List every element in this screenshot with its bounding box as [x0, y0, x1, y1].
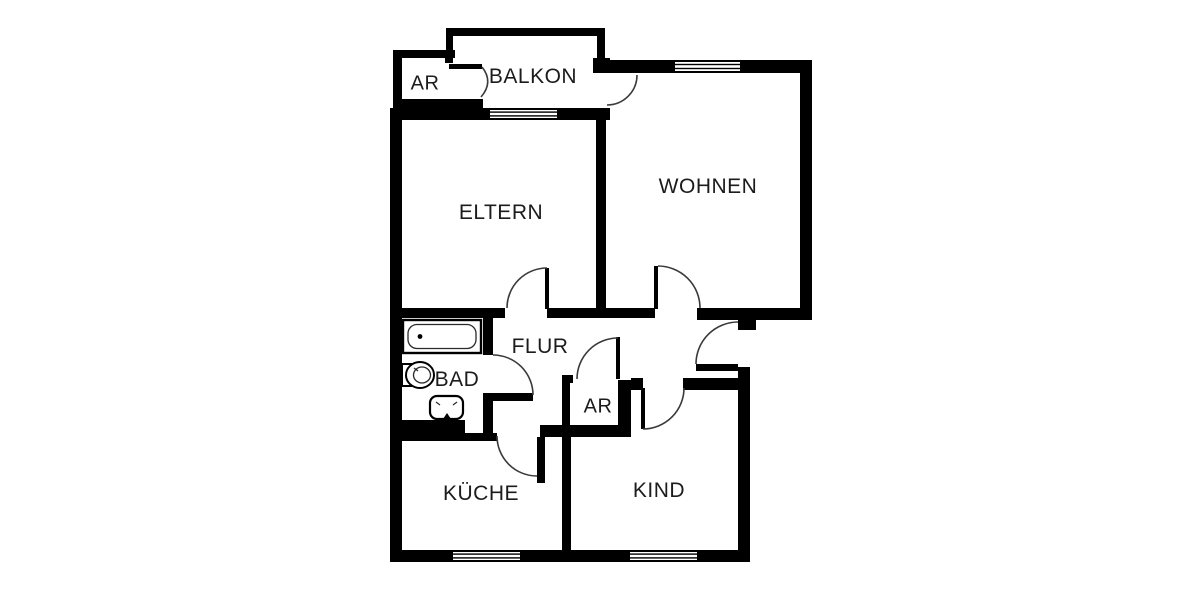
door-leaf-ar-bottom	[616, 337, 620, 379]
door-arc-balkon	[607, 75, 637, 105]
door-arc-entry	[696, 322, 738, 364]
door-arc-bad	[493, 355, 533, 395]
wall-balcony-top	[448, 28, 605, 36]
label-wohnen: WOHNEN	[659, 175, 758, 199]
wall-balcony-right	[597, 28, 605, 62]
bathtub-icon	[403, 320, 481, 353]
door-leaf-wohnen	[654, 266, 658, 309]
wall-bottom-left	[390, 550, 453, 562]
label-kind: KIND	[633, 479, 685, 503]
wall-balcony-left	[446, 28, 453, 53]
wall-divider-eltern-wohnen	[596, 120, 606, 318]
door-leaf-kind	[641, 388, 645, 429]
wall-bad-right-upper	[483, 318, 493, 355]
sink-icon	[430, 396, 463, 419]
wall-divider-kueche-kind	[562, 437, 571, 550]
label-kueche: KÜCHE	[443, 482, 519, 506]
wall-bottom-right	[697, 550, 748, 562]
window-kind	[630, 550, 697, 562]
wall-bottom-mid	[520, 550, 630, 562]
wall-wohnen-right	[800, 60, 812, 320]
floor-plan-page: AR BALKON ELTERN WOHNEN FLUR BAD AR KÜCH…	[0, 0, 1200, 600]
wall-eltern-top-left	[390, 108, 490, 120]
wall-kueche-top	[402, 433, 497, 441]
door-leaf-entry	[696, 364, 738, 371]
door-arc-ar-bottom	[577, 338, 618, 379]
window-wohnen	[675, 60, 740, 73]
label-flur: FLUR	[512, 335, 569, 359]
door-arc-eltern	[507, 268, 547, 308]
wall-ar2-bottom	[540, 425, 631, 437]
wall-bad-south-horiz	[483, 393, 533, 401]
wall-ar-top-bottom	[393, 99, 483, 108]
door-arc-ar-top	[481, 67, 488, 97]
door-arc-kueche	[497, 436, 537, 476]
toilet-icon	[402, 362, 434, 388]
wall-entry-stub	[738, 308, 756, 330]
wall-left-exterior	[390, 108, 402, 562]
wall-eltern-top-right	[557, 108, 610, 120]
door-leaf-ar-top	[449, 64, 482, 69]
window-kueche	[453, 550, 520, 562]
label-eltern: ELTERN	[459, 201, 543, 225]
wall-bad-bottom	[390, 420, 465, 433]
wall-flur-top-mid	[547, 308, 655, 318]
wall-wohnen-top-left	[593, 60, 675, 73]
wall-ar2-top-stub	[562, 375, 573, 383]
wall-flur-top-left	[402, 308, 505, 318]
floor-plan-drawing	[0, 0, 1200, 600]
wall-right-lower	[738, 367, 750, 562]
label-ar-top: AR	[411, 73, 440, 96]
door-arc-wohnen	[658, 266, 700, 308]
window-eltern-balkon	[490, 108, 557, 120]
label-bad: BAD	[435, 368, 480, 392]
door-arc-kind	[643, 388, 684, 429]
wall-kueche-door-stub	[537, 437, 545, 483]
door-leaf-eltern	[545, 268, 549, 309]
label-balkon: BALKON	[489, 65, 577, 89]
label-ar-bottom: AR	[584, 396, 613, 419]
